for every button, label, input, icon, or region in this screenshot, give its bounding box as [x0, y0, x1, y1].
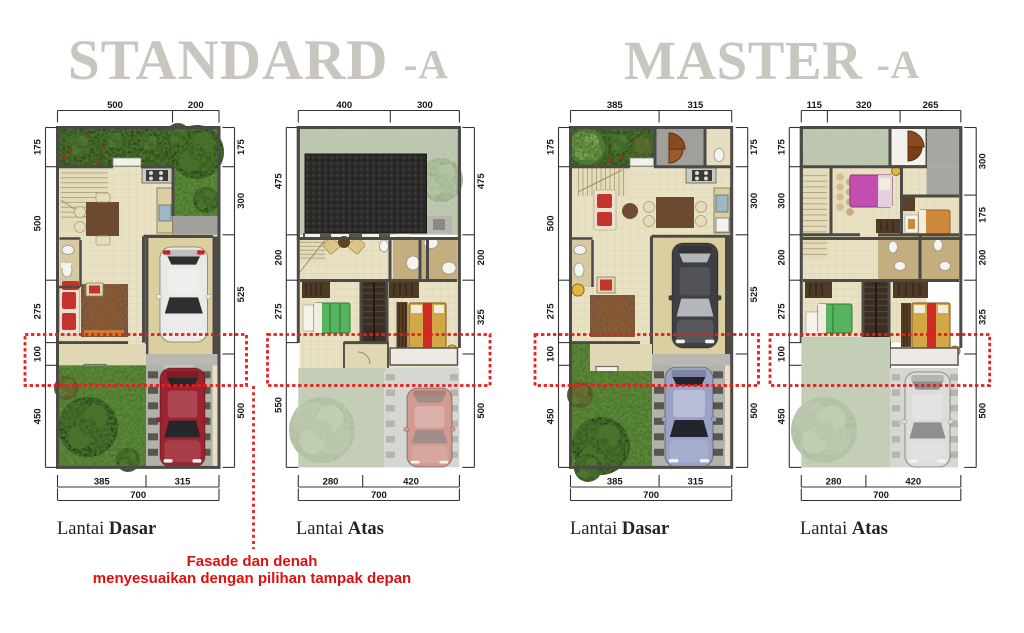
- svg-text:700: 700: [643, 490, 659, 501]
- svg-text:300: 300: [236, 193, 247, 209]
- svg-text:385: 385: [607, 477, 624, 488]
- svg-text:275: 275: [33, 303, 44, 320]
- svg-text:115: 115: [807, 100, 823, 111]
- svg-text:325: 325: [476, 308, 487, 325]
- svg-text:Lantai Dasar: Lantai Dasar: [57, 519, 156, 539]
- svg-text:175: 175: [33, 138, 44, 155]
- svg-text:175: 175: [978, 206, 989, 223]
- svg-text:175: 175: [546, 138, 557, 155]
- svg-text:100: 100: [546, 346, 557, 362]
- svg-text:315: 315: [175, 477, 192, 488]
- svg-text:Lantai Dasar: Lantai Dasar: [570, 519, 669, 539]
- svg-text:Lantai Atas: Lantai Atas: [800, 519, 888, 539]
- svg-text:315: 315: [687, 477, 704, 488]
- svg-text:400: 400: [336, 100, 352, 111]
- svg-text:Lantai Atas: Lantai Atas: [296, 519, 384, 539]
- svg-text:200: 200: [978, 250, 989, 266]
- svg-text:300: 300: [749, 193, 760, 209]
- svg-text:275: 275: [273, 303, 284, 320]
- svg-text:175: 175: [236, 138, 247, 155]
- svg-text:300: 300: [978, 153, 989, 169]
- svg-text:385: 385: [94, 477, 111, 488]
- svg-text:700: 700: [371, 490, 387, 501]
- svg-text:300: 300: [417, 100, 433, 111]
- svg-text:325: 325: [978, 308, 989, 325]
- svg-text:500: 500: [107, 100, 123, 111]
- svg-text:200: 200: [188, 100, 204, 111]
- svg-text:315: 315: [687, 100, 704, 111]
- svg-text:320: 320: [856, 100, 872, 111]
- svg-text:500: 500: [236, 403, 247, 419]
- svg-text:menyesuaikan dengan pilihan ta: menyesuaikan dengan pilihan tampak depan: [93, 570, 411, 587]
- svg-text:700: 700: [130, 490, 146, 501]
- svg-text:100: 100: [776, 346, 787, 362]
- svg-text:MASTER -A: MASTER -A: [624, 30, 920, 91]
- svg-text:STANDARD -A: STANDARD -A: [68, 29, 449, 92]
- svg-text:450: 450: [33, 408, 44, 424]
- svg-text:500: 500: [546, 215, 557, 231]
- svg-text:525: 525: [236, 286, 247, 303]
- svg-text:300: 300: [776, 193, 787, 209]
- svg-text:700: 700: [873, 490, 889, 501]
- svg-text:200: 200: [273, 250, 284, 266]
- svg-text:450: 450: [776, 408, 787, 424]
- svg-text:275: 275: [546, 303, 557, 320]
- svg-text:200: 200: [476, 250, 487, 266]
- svg-text:420: 420: [403, 477, 419, 488]
- svg-text:Fasade dan denah: Fasade dan denah: [187, 553, 318, 570]
- svg-text:265: 265: [923, 100, 940, 111]
- svg-text:525: 525: [749, 286, 760, 303]
- svg-text:500: 500: [476, 403, 487, 419]
- svg-text:175: 175: [776, 138, 787, 155]
- svg-text:280: 280: [826, 477, 842, 488]
- svg-text:275: 275: [776, 303, 787, 320]
- svg-text:500: 500: [749, 403, 760, 419]
- svg-text:280: 280: [323, 477, 339, 488]
- svg-text:385: 385: [607, 100, 624, 111]
- svg-text:100: 100: [33, 346, 44, 362]
- svg-text:475: 475: [273, 173, 284, 190]
- svg-text:500: 500: [978, 403, 989, 419]
- svg-text:200: 200: [776, 250, 787, 266]
- svg-text:450: 450: [546, 408, 557, 424]
- svg-text:475: 475: [476, 173, 487, 190]
- svg-text:420: 420: [905, 477, 921, 488]
- svg-text:500: 500: [33, 215, 44, 231]
- svg-text:175: 175: [749, 138, 760, 155]
- svg-text:550: 550: [273, 397, 284, 413]
